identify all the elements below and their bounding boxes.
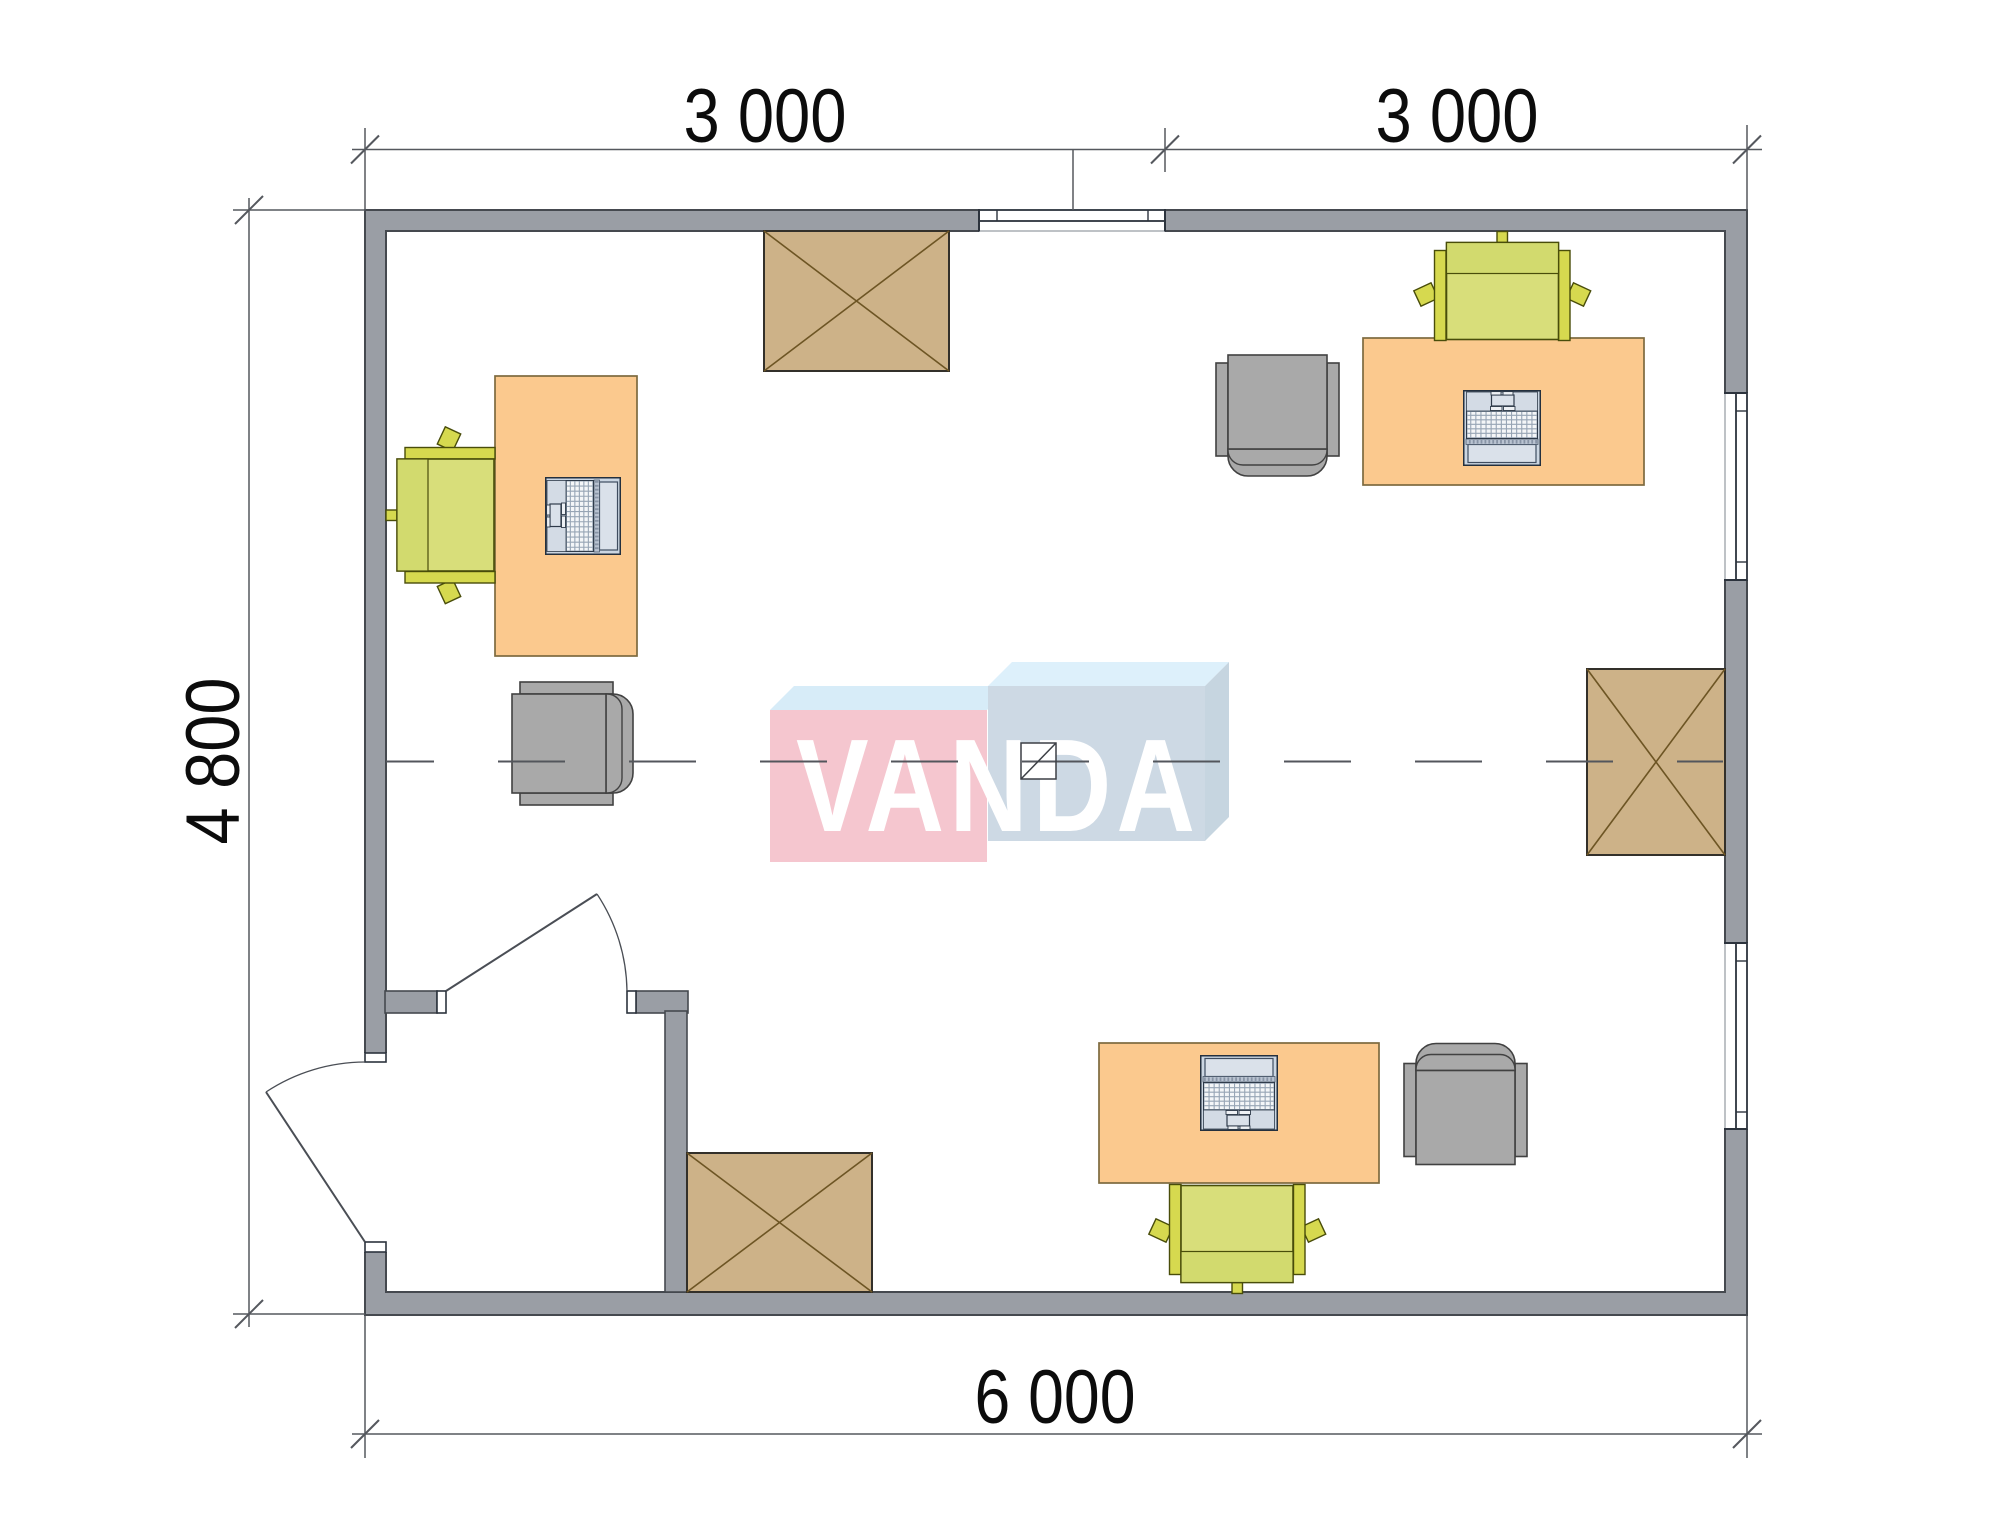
svg-text:3 000: 3 000	[1376, 74, 1539, 159]
svg-text:3 000: 3 000	[684, 74, 847, 159]
svg-text:4 800: 4 800	[171, 678, 256, 845]
svg-text:VANDA: VANDA	[796, 712, 1200, 859]
svg-text:6 000: 6 000	[975, 1355, 1136, 1440]
